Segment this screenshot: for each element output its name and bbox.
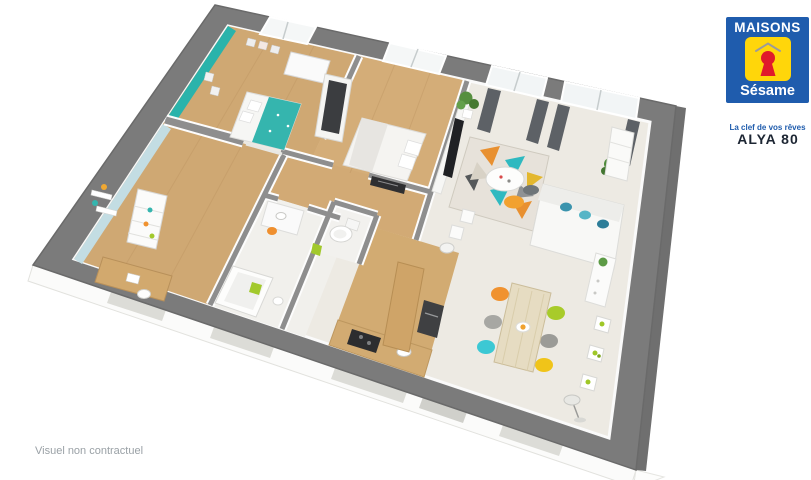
cube-seat: [460, 209, 475, 224]
pillow-blue: [560, 203, 572, 212]
chair-orange: [491, 287, 509, 301]
pillow-blue: [579, 211, 591, 220]
coffee-table: [486, 167, 524, 191]
floor-plan-3d: [0, 0, 811, 480]
brand-name: MAISONS: [734, 21, 801, 35]
wall-frame: [210, 86, 220, 96]
washbasin: [276, 213, 286, 220]
chair-gray: [484, 315, 502, 329]
chair-yellow: [535, 358, 553, 372]
decor-orange: [101, 184, 107, 190]
brand-logo: MAISONS Sésame La clef de vos rêves: [726, 17, 809, 103]
desk-chair: [138, 290, 151, 299]
wall-frame: [204, 72, 214, 82]
page: MAISONS Sésame La clef de vos rêves ALYA…: [0, 0, 811, 480]
disclaimer-text: Visuel non contractuel: [35, 445, 143, 457]
toilet-seat: [334, 230, 347, 239]
bath-stool: [273, 297, 283, 305]
stool-orange: [267, 227, 277, 235]
plant-small: [599, 258, 608, 267]
pillow-blue: [597, 220, 609, 229]
keyhole-icon: [745, 37, 791, 81]
logo-box: MAISONS Sésame: [726, 17, 809, 103]
decor-teal: [92, 200, 98, 206]
model-name: ALYA 80: [718, 131, 811, 147]
basket: [440, 243, 454, 253]
chair-cyan: [477, 340, 495, 354]
side-table-dark: [523, 185, 539, 195]
brand-subname: Sésame: [740, 84, 795, 99]
chair-lime: [547, 306, 565, 320]
cube-seat: [449, 225, 464, 240]
chair-gray: [540, 334, 558, 348]
side-table-orange: [504, 196, 524, 209]
